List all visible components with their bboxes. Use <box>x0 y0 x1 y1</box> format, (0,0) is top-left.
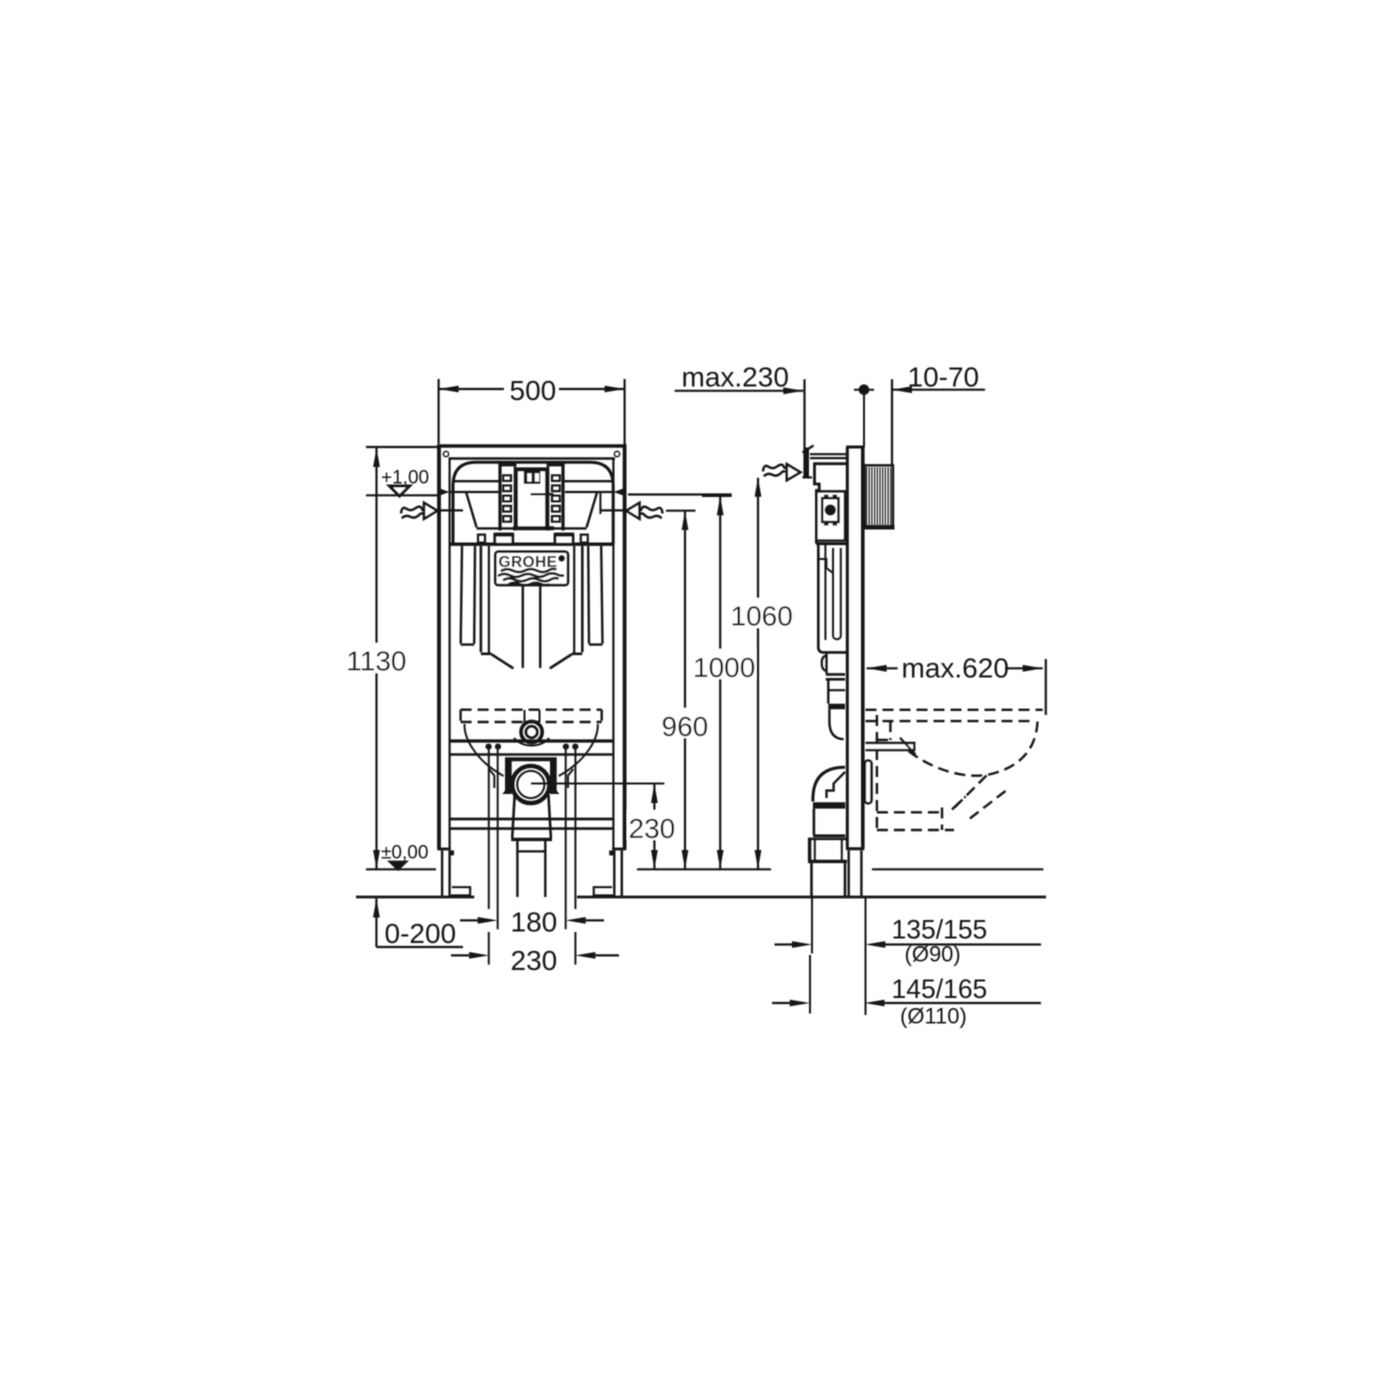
svg-text:max.230: max.230 <box>682 362 789 393</box>
svg-text:500: 500 <box>510 375 557 406</box>
svg-text:145/165: 145/165 <box>892 974 988 1004</box>
svg-text:1060: 1060 <box>731 601 793 632</box>
svg-text:1130: 1130 <box>346 646 406 677</box>
svg-text:(Ø90): (Ø90) <box>905 942 961 967</box>
svg-text:10-70: 10-70 <box>908 362 980 393</box>
svg-text:135/155: 135/155 <box>892 915 988 945</box>
svg-text:0-200: 0-200 <box>385 918 457 949</box>
svg-text:180: 180 <box>511 907 558 938</box>
svg-text:1000: 1000 <box>693 652 755 683</box>
svg-text:960: 960 <box>662 711 709 742</box>
svg-text:(Ø110): (Ø110) <box>900 1004 967 1029</box>
svg-text:230: 230 <box>511 945 558 976</box>
svg-text:230: 230 <box>629 813 676 844</box>
svg-text:max.620: max.620 <box>902 653 1009 684</box>
svg-text:+1,00: +1,00 <box>381 468 429 489</box>
svg-text:GROHE: GROHE <box>499 554 558 571</box>
svg-text:±0,00: ±0,00 <box>381 843 428 864</box>
